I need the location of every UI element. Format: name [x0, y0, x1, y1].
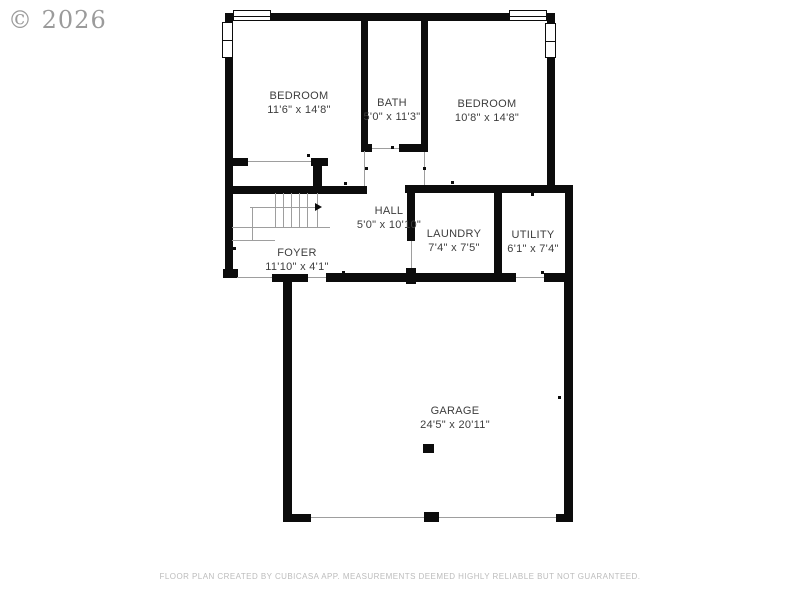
door-marker	[336, 18, 339, 21]
room-dimensions: 6'1" x 7'4"	[507, 242, 558, 256]
room-name: BATH	[364, 96, 421, 110]
room-dimensions: 10'8" x 14'8"	[455, 111, 519, 125]
door-marker	[365, 167, 368, 170]
opening-line	[248, 161, 311, 162]
window-symbol	[233, 10, 271, 21]
wall-segment	[361, 144, 372, 152]
copyright-watermark: © 2026	[8, 6, 107, 34]
door-marker	[344, 182, 347, 185]
wall-segment	[225, 13, 555, 21]
wall-segment	[225, 186, 367, 194]
room-name: HALL	[357, 204, 421, 218]
door-marker	[365, 87, 368, 90]
room-dimensions: 11'6" x 14'8"	[267, 103, 330, 117]
door-marker	[549, 100, 552, 103]
room-label-bedroom-left: BEDROOM 11'6" x 14'8"	[267, 89, 330, 117]
wall-segment	[283, 514, 311, 522]
opening-line	[299, 193, 300, 227]
disclaimer-text: FLOOR PLAN CREATED BY CUBICASA APP. MEAS…	[0, 572, 800, 581]
door-marker	[531, 193, 534, 196]
room-label-garage: GARAGE 24'5" x 20'11"	[420, 404, 490, 432]
opening-line	[311, 517, 424, 518]
door-marker	[451, 181, 454, 184]
room-label-foyer: FOYER 11'10" x 4'1"	[265, 246, 328, 274]
opening-line	[252, 207, 253, 241]
room-dimensions: 5'0" x 10'10"	[357, 218, 421, 232]
room-label-laundry: LAUNDRY 7'4" x 7'5"	[427, 227, 481, 255]
opening-line	[237, 277, 272, 278]
room-dimensions: 7'4" x 7'5"	[427, 241, 481, 255]
wall-segment	[225, 158, 248, 166]
room-label-bedroom-right: BEDROOM 10'8" x 14'8"	[455, 97, 519, 125]
wall-segment	[361, 13, 368, 151]
door-marker	[342, 271, 345, 274]
room-name: LAUNDRY	[427, 227, 481, 241]
wall-segment	[556, 514, 573, 522]
room-label-utility: UTILITY 6'1" x 7'4"	[507, 228, 558, 256]
window-symbol	[509, 10, 547, 21]
opening-line	[283, 193, 284, 227]
room-name: FOYER	[265, 246, 328, 260]
wall-segment	[424, 512, 439, 522]
wall-segment	[223, 269, 238, 278]
opening-line	[232, 240, 275, 241]
floor-plan: © 2026 BEDROOM 11'6" x 14'8" BATH 5'0" x…	[0, 0, 800, 600]
opening-line	[372, 148, 399, 149]
opening-line	[275, 193, 276, 227]
wall-segment	[399, 144, 428, 152]
room-dimensions: 24'5" x 20'11"	[420, 418, 490, 432]
room-name: BEDROOM	[455, 97, 519, 111]
opening-line	[250, 207, 318, 208]
opening-line	[307, 193, 308, 227]
room-label-bath: BATH 5'0" x 11'3"	[364, 96, 421, 124]
door-marker	[541, 271, 544, 274]
door-marker	[233, 247, 236, 250]
room-name: BEDROOM	[267, 89, 330, 103]
opening-line	[232, 227, 330, 228]
support-post	[423, 444, 434, 453]
wall-segment	[564, 273, 573, 522]
wall-segment	[326, 273, 516, 282]
wall-segment	[421, 13, 428, 152]
room-name: UTILITY	[507, 228, 558, 242]
opening-line	[291, 193, 292, 227]
room-label-hall: HALL 5'0" x 10'10"	[357, 204, 421, 232]
door-marker	[423, 167, 426, 170]
door-marker	[391, 146, 394, 149]
stair-direction-arrow	[315, 203, 322, 211]
room-dimensions: 5'0" x 11'3"	[364, 110, 421, 124]
door-marker	[423, 85, 426, 88]
door-marker	[566, 231, 569, 234]
window-symbol	[222, 22, 233, 58]
wall-segment	[405, 185, 573, 193]
door-marker	[307, 154, 310, 157]
opening-line	[439, 517, 556, 518]
opening-line	[308, 277, 326, 278]
door-marker	[228, 89, 231, 92]
opening-line	[411, 241, 412, 268]
door-marker	[558, 396, 561, 399]
window-symbol	[545, 23, 556, 58]
room-name: GARAGE	[420, 404, 490, 418]
door-marker	[288, 396, 291, 399]
opening-line	[516, 277, 544, 278]
wall-segment	[494, 185, 502, 281]
room-dimensions: 11'10" x 4'1"	[265, 260, 328, 274]
